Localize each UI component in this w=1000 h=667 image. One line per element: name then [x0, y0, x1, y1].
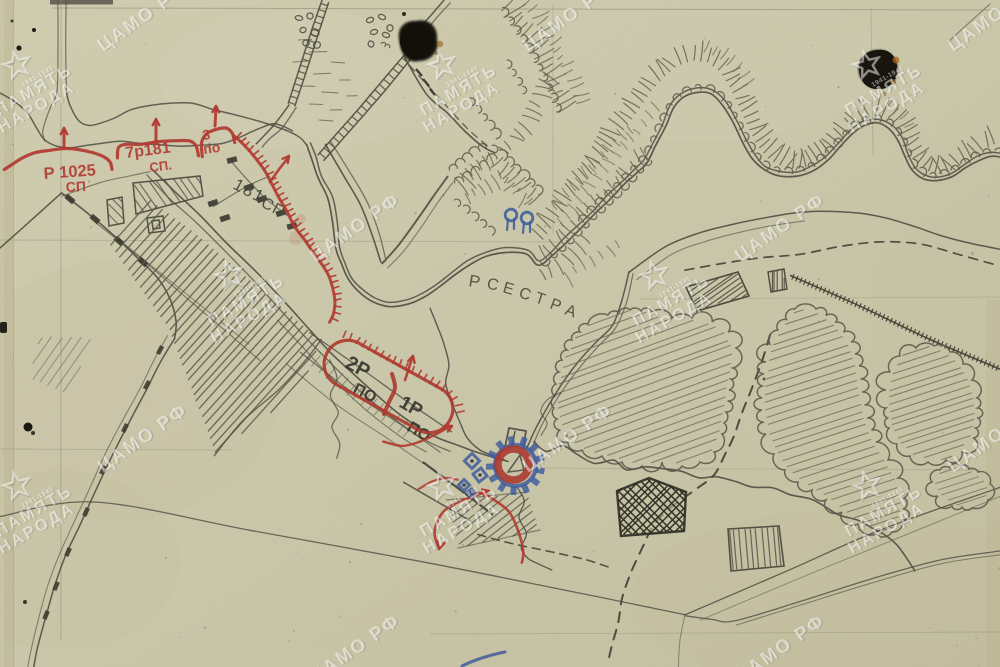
svg-text:по: по — [202, 139, 221, 157]
svg-text:СП.: СП. — [149, 157, 173, 175]
svg-text:СП: СП — [65, 178, 86, 195]
